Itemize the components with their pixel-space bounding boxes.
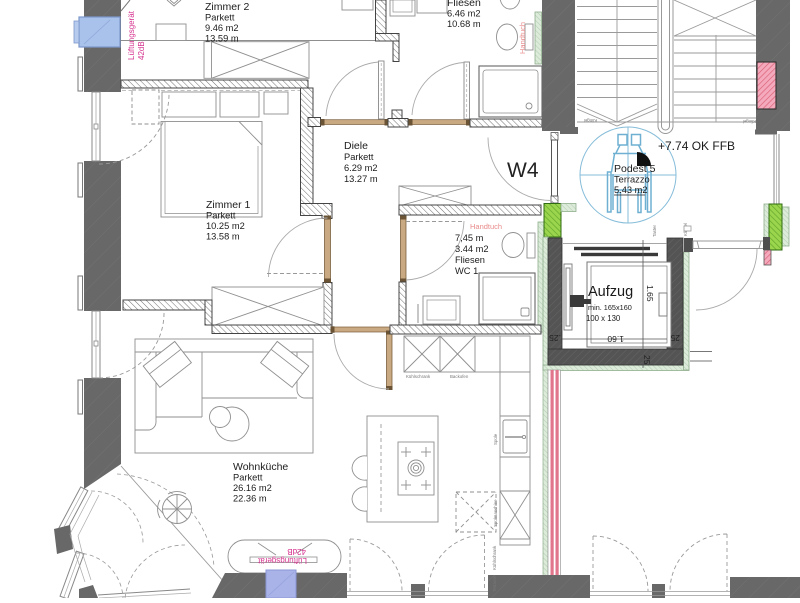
svg-text:Terrazzo: Terrazzo: [614, 175, 650, 185]
svg-text:13.59 m: 13.59 m: [205, 34, 239, 44]
svg-text:1.60: 1.60: [607, 334, 624, 344]
svg-text:Handtuch: Handtuch: [470, 222, 502, 231]
svg-text:Wohnküche: Wohnküche: [233, 461, 288, 473]
svg-text:Spüle: Spüle: [493, 433, 498, 445]
svg-text:Parkett: Parkett: [206, 211, 236, 221]
svg-text:9.46 m2: 9.46 m2: [205, 23, 239, 33]
svg-text:13.27 m: 13.27 m: [344, 174, 378, 184]
svg-text:Taster: Taster: [652, 225, 657, 237]
svg-text:7,45 m: 7,45 m: [455, 233, 484, 243]
svg-text:min. 165x160: min. 165x160: [588, 303, 632, 312]
svg-text:Parkett: Parkett: [344, 152, 374, 162]
svg-text:3.44 m2: 3.44 m2: [455, 244, 489, 254]
svg-text:WC 1: WC 1: [455, 266, 478, 276]
svg-text:Spülmaschine: Spülmaschine: [493, 499, 498, 527]
svg-text:22.36 m: 22.36 m: [233, 494, 267, 504]
svg-text:Kühlschrank: Kühlschrank: [406, 374, 431, 379]
svg-text:13.58 m: 13.58 m: [206, 232, 240, 242]
svg-text:10.25 m2: 10.25 m2: [206, 221, 245, 231]
svg-text:Backofen: Backofen: [450, 374, 469, 379]
svg-text:42dB: 42dB: [287, 547, 306, 556]
svg-text:26.16 m2: 26.16 m2: [233, 483, 272, 493]
svg-text:1.65: 1.65: [645, 285, 655, 302]
svg-text:10.68 m: 10.68 m: [447, 19, 481, 29]
svg-text:Parkett: Parkett: [205, 13, 235, 23]
svg-text:.25: .25: [549, 333, 561, 343]
svg-text:Lüftungsgerät: Lüftungsgerät: [127, 10, 136, 60]
svg-text:Aufzug: Aufzug: [588, 284, 633, 300]
svg-text:25: 25: [642, 355, 652, 365]
svg-text:+7.74 OK FFB: +7.74 OK FFB: [658, 139, 735, 153]
svg-text:Diele: Diele: [344, 140, 368, 152]
svg-text:Klingel: Klingel: [743, 119, 756, 124]
svg-text:Lüftungsgerät: Lüftungsgerät: [257, 556, 307, 565]
svg-text:Zimmer 1: Zimmer 1: [206, 199, 250, 211]
svg-text:Terrasse: Terrasse: [492, 575, 497, 592]
svg-text:Parkett: Parkett: [233, 473, 263, 483]
svg-text:25: 25: [670, 333, 680, 343]
svg-text:42dB: 42dB: [137, 41, 146, 60]
svg-text:Zimmer 2: Zimmer 2: [205, 1, 249, 13]
svg-text:Fliesen: Fliesen: [455, 255, 485, 265]
svg-text:100 x 130: 100 x 130: [586, 314, 621, 323]
svg-text:6.29 m2: 6.29 m2: [344, 163, 378, 173]
svg-text:5.43 m2: 5.43 m2: [614, 185, 648, 195]
svg-text:Klingel: Klingel: [584, 118, 597, 123]
svg-text:W4: W4: [507, 159, 539, 182]
svg-text:Handtuch: Handtuch: [518, 22, 527, 54]
svg-text:Kühlschrank: Kühlschrank: [492, 545, 497, 570]
svg-text:Podest 5: Podest 5: [614, 163, 656, 175]
svg-text:6.46 m2: 6.46 m2: [447, 9, 481, 19]
